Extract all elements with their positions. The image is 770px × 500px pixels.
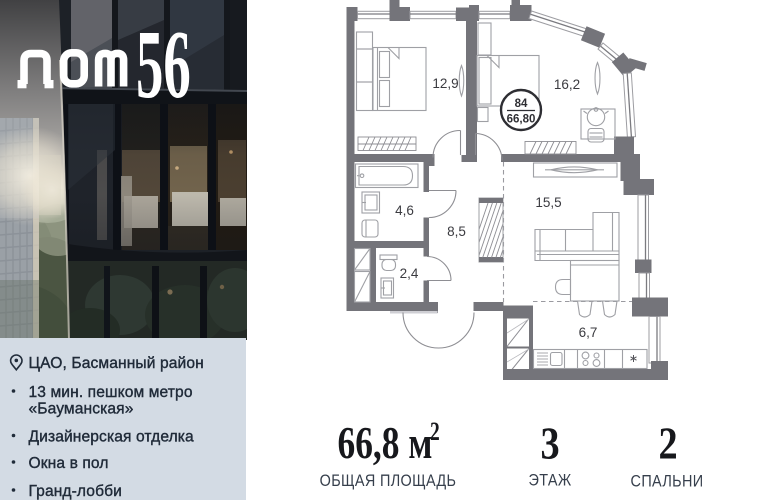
svg-text:3: 3 [540, 420, 559, 470]
svg-text:Окна в пол: Окна в пол [29, 455, 109, 472]
svg-text:2: 2 [658, 420, 677, 470]
svg-text:2: 2 [430, 417, 440, 445]
svg-text:ЦАО, Басманный район: ЦАО, Басманный район [29, 355, 204, 372]
svg-text:ОБЩАЯ ПЛОЩАДЬ: ОБЩАЯ ПЛОЩАДЬ [320, 472, 457, 490]
svg-text:56: 56 [136, 12, 191, 119]
svg-text:8,5: 8,5 [447, 224, 466, 239]
svg-text:66,80: 66,80 [507, 114, 536, 126]
svg-text:4,6: 4,6 [395, 203, 414, 218]
svg-text:12,9: 12,9 [432, 76, 458, 91]
svg-text:СПАЛЬНИ: СПАЛЬНИ [631, 473, 704, 491]
svg-text:13 мин. пешком метро: 13 мин. пешком метро [29, 384, 193, 401]
svg-text:16,2: 16,2 [554, 77, 580, 92]
svg-text:«Бауманская»: «Бауманская» [29, 401, 134, 418]
svg-text:ЭТАЖ: ЭТАЖ [528, 472, 571, 490]
svg-text:6,7: 6,7 [579, 325, 598, 340]
svg-text:66,8 м: 66,8 м [338, 417, 433, 469]
svg-text:84: 84 [515, 98, 528, 110]
svg-text:Гранд-лобби: Гранд-лобби [29, 483, 122, 500]
svg-text:15,5: 15,5 [535, 195, 561, 210]
svg-text:2,4: 2,4 [400, 266, 419, 281]
svg-text:Дизайнерская отделка: Дизайнерская отделка [29, 429, 195, 446]
